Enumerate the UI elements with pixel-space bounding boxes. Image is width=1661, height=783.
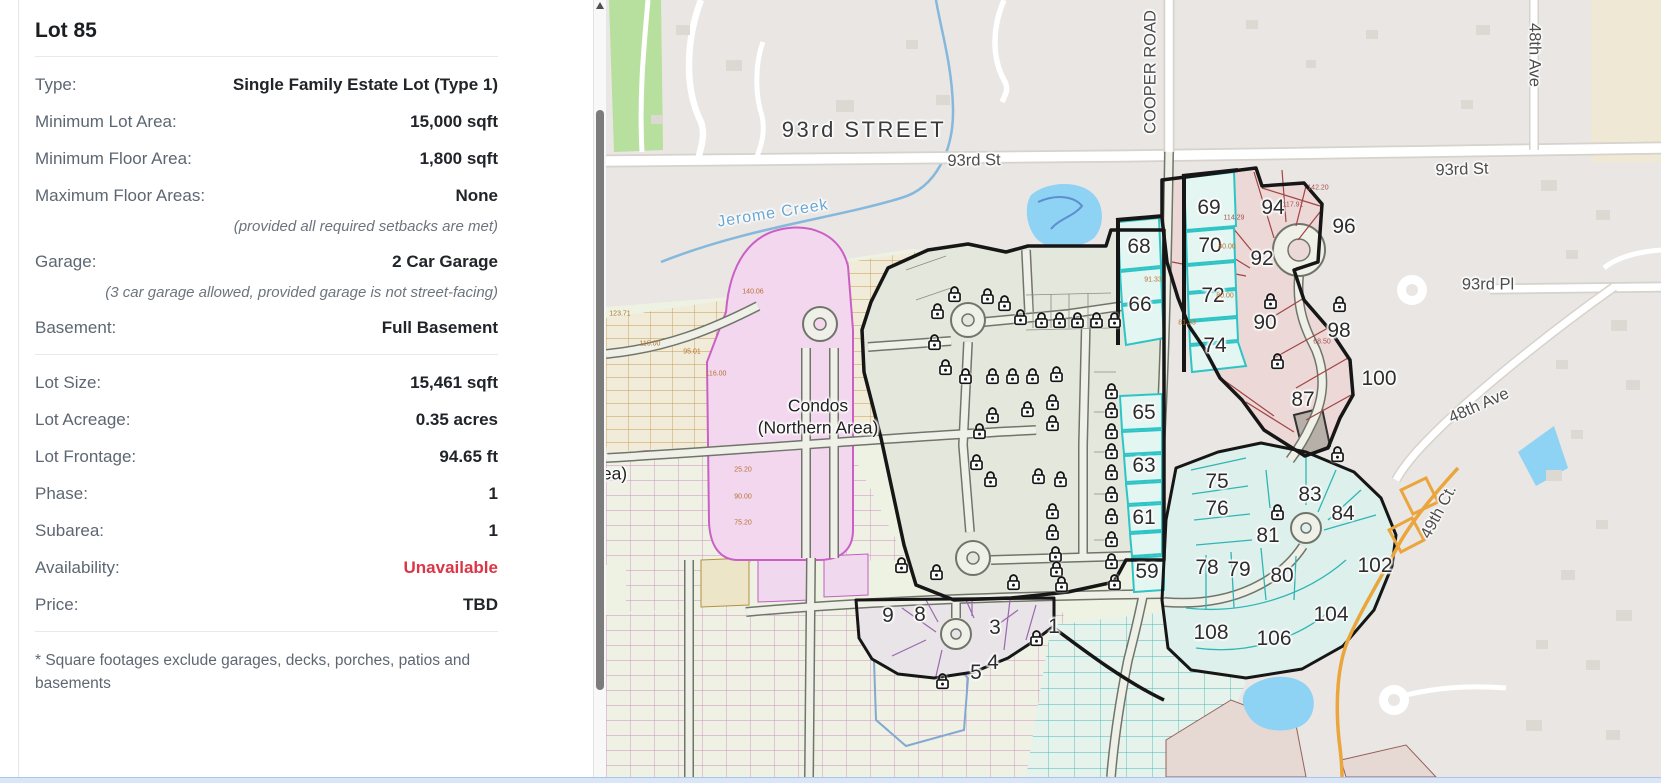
attribute-label: Availability: <box>35 557 120 579</box>
lot-label-76[interactable]: 76 <box>1205 497 1228 521</box>
attribute-row: Basement:Full Basement <box>35 317 498 339</box>
lot-label-108[interactable]: 108 <box>1193 621 1228 645</box>
dimension-label: 117.91 <box>1283 202 1304 209</box>
lot-label-3[interactable]: 3 <box>989 616 1001 640</box>
dimension-label: 25.20 <box>734 467 752 474</box>
panel-scrollbar[interactable] <box>593 0 607 777</box>
attribute-label: Minimum Lot Area: <box>35 111 177 133</box>
area-label: rn Area) <box>606 464 627 485</box>
lot-label-65[interactable]: 65 <box>1132 401 1155 425</box>
lot-label-84[interactable]: 84 <box>1331 502 1354 526</box>
attribute-row: Lot Size:15,461 sqft <box>35 372 498 394</box>
lot-label-96[interactable]: 96 <box>1332 215 1355 239</box>
lot-label-106[interactable]: 106 <box>1256 627 1291 651</box>
attribute-value: 1,800 sqft <box>420 148 498 170</box>
street-label: COOPER ROAD <box>1142 10 1161 134</box>
attribute-value: 1 <box>489 520 498 542</box>
attribute-row: Minimum Floor Area:1,800 sqft <box>35 148 498 170</box>
lot-label-61[interactable]: 61 <box>1132 506 1155 530</box>
attribute-value: TBD <box>463 594 498 616</box>
lot-label-9[interactable]: 9 <box>882 604 894 628</box>
street-label: 49th Ct. <box>1417 482 1461 542</box>
street-label: 48th Ave <box>1525 23 1544 87</box>
lot-label-87[interactable]: 87 <box>1291 388 1314 412</box>
attribute-label: Maximum Floor Areas: <box>35 185 205 207</box>
divider <box>35 56 498 57</box>
dimension-label: 80.00 <box>1216 293 1234 300</box>
area-label: Condos <box>788 396 848 417</box>
lot-label-69[interactable]: 69 <box>1197 196 1220 220</box>
attribute-label: Type: <box>35 74 77 96</box>
dimension-label: 116.00 <box>706 371 727 378</box>
dimension-label: 75.20 <box>734 520 752 527</box>
street-label: 93rd St <box>947 151 1001 171</box>
attribute-value: Full Basement <box>382 317 498 339</box>
street-label: 93rd Pl <box>1462 276 1514 295</box>
lot-label-68[interactable]: 68 <box>1127 235 1150 259</box>
lot-label-4[interactable]: 4 <box>987 651 999 675</box>
attribute-row: Type:Single Family Estate Lot (Type 1) <box>35 74 498 96</box>
lot-label-94[interactable]: 94 <box>1261 196 1284 220</box>
street-label: 93rd St <box>1435 160 1489 181</box>
attribute-row: Lot Frontage:94.65 ft <box>35 446 498 468</box>
horizontal-scrollbar[interactable] <box>0 777 1661 783</box>
lot-label-5[interactable]: 5 <box>970 661 982 685</box>
area-label: (Northern Area) <box>758 418 879 439</box>
attribute-label: Lot Acreage: <box>35 409 130 431</box>
attribute-value: 15,461 sqft <box>410 372 498 394</box>
dimension-label: 91.33 <box>1144 277 1162 284</box>
attribute-label: Phase: <box>35 483 88 505</box>
street-label: 48th Ave <box>1446 384 1512 427</box>
attribute-value: Unavailable <box>404 557 499 579</box>
lot-label-104[interactable]: 104 <box>1313 603 1348 627</box>
attribute-value: None <box>456 185 499 207</box>
attribute-label: Lot Size: <box>35 372 101 394</box>
attribute-label: Minimum Floor Area: <box>35 148 192 170</box>
lot-label-102[interactable]: 102 <box>1357 554 1392 578</box>
dimension-label: 81.33 <box>1178 320 1196 327</box>
dimension-label: 90.00 <box>734 494 752 501</box>
dimension-label: 114.29 <box>1224 215 1245 222</box>
lot-label-66[interactable]: 66 <box>1128 293 1151 317</box>
dimension-label: 123.71 <box>609 311 630 318</box>
lot-label-8[interactable]: 8 <box>914 603 926 627</box>
attribute-row: Price:TBD <box>35 594 498 616</box>
dimension-label: 115.00 <box>640 341 661 348</box>
divider <box>35 631 498 632</box>
lot-label-80[interactable]: 80 <box>1270 564 1293 588</box>
street-label: Jerome Creek <box>716 196 830 231</box>
attribute-label: Lot Frontage: <box>35 446 136 468</box>
attribute-row: Lot Acreage:0.35 acres <box>35 409 498 431</box>
attribute-row: Garage:2 Car Garage <box>35 251 498 273</box>
lot-label-81[interactable]: 81 <box>1256 524 1279 548</box>
attribute-row: Availability:Unavailable <box>35 557 498 579</box>
lot-label-83[interactable]: 83 <box>1298 483 1321 507</box>
attribute-value: 0.35 acres <box>416 409 498 431</box>
attribute-row: Minimum Lot Area:15,000 sqft <box>35 111 498 133</box>
dimension-label: 95.01 <box>683 349 701 356</box>
dimension-label: 80.00 <box>1218 244 1236 251</box>
lot-label-92[interactable]: 92 <box>1250 247 1273 271</box>
street-label: 93rd STREET <box>782 117 946 143</box>
lot-label-74[interactable]: 74 <box>1203 334 1226 358</box>
lot-label-63[interactable]: 63 <box>1132 454 1155 478</box>
attribute-value: Single Family Estate Lot (Type 1) <box>233 74 498 96</box>
lot-details-panel: Lot 85 Type:Single Family Estate Lot (Ty… <box>0 0 593 777</box>
dimension-label: 142.20 <box>1307 185 1328 192</box>
attribute-note: (provided all required setbacks are met) <box>35 217 498 237</box>
attribute-row: Subarea:1 <box>35 520 498 542</box>
lot-label-75[interactable]: 75 <box>1205 470 1228 494</box>
lot-label-79[interactable]: 79 <box>1227 558 1250 582</box>
dimension-label: 68.50 <box>1313 339 1331 346</box>
attribute-value: 1 <box>489 483 498 505</box>
plat-map[interactable]: 93rd STREET93rd St93rd StCOOPER ROAD48th… <box>606 0 1661 777</box>
attribute-label: Garage: <box>35 251 96 273</box>
attribute-value: 94.65 ft <box>439 446 498 468</box>
lot-label-59[interactable]: 59 <box>1135 560 1158 584</box>
divider <box>35 354 498 355</box>
scrollbar-up-arrow-icon[interactable] <box>596 2 604 9</box>
scrollbar-thumb[interactable] <box>596 110 604 690</box>
footnote: * Square footages exclude garages, decks… <box>35 649 498 695</box>
attribute-label: Basement: <box>35 317 116 339</box>
attribute-row: Maximum Floor Areas:None <box>35 185 498 207</box>
page-title: Lot 85 <box>35 19 498 43</box>
lot-label-1[interactable]: 1 <box>1048 615 1060 639</box>
attribute-note: (3 car garage allowed, provided garage i… <box>35 283 498 303</box>
attribute-value: 15,000 sqft <box>410 111 498 133</box>
attribute-label: Price: <box>35 594 78 616</box>
attribute-row: Phase:1 <box>35 483 498 505</box>
map-label-layer: 93rd STREET93rd St93rd StCOOPER ROAD48th… <box>606 0 1661 777</box>
dimension-label: 140.06 <box>742 289 763 296</box>
lot-label-100[interactable]: 100 <box>1361 367 1396 391</box>
attribute-value: 2 Car Garage <box>392 251 498 273</box>
lot-label-78[interactable]: 78 <box>1195 556 1218 580</box>
lot-label-90[interactable]: 90 <box>1253 311 1276 335</box>
lot-attributes-list: Type:Single Family Estate Lot (Type 1)Mi… <box>35 74 498 632</box>
attribute-label: Subarea: <box>35 520 104 542</box>
panel-left-border <box>18 0 19 777</box>
